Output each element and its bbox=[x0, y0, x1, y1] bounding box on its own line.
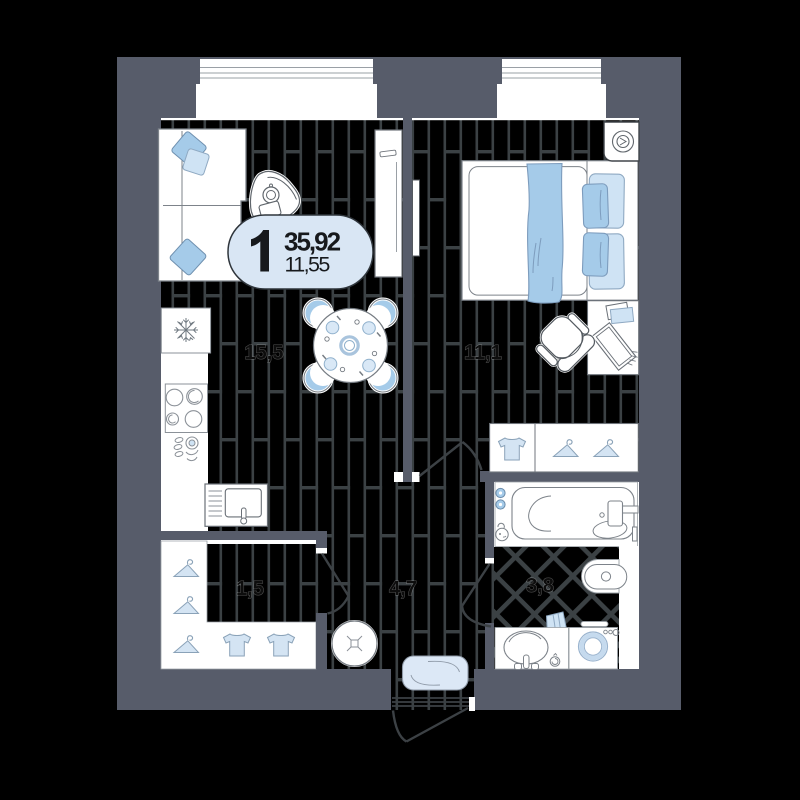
svg-text:4,7: 4,7 bbox=[389, 578, 417, 600]
svg-text:1,5: 1,5 bbox=[236, 578, 264, 600]
svg-text:11,55: 11,55 bbox=[285, 253, 331, 277]
svg-text:3,8: 3,8 bbox=[526, 575, 554, 597]
svg-text:11,1: 11,1 bbox=[464, 342, 502, 364]
svg-text:15,5: 15,5 bbox=[245, 342, 284, 364]
